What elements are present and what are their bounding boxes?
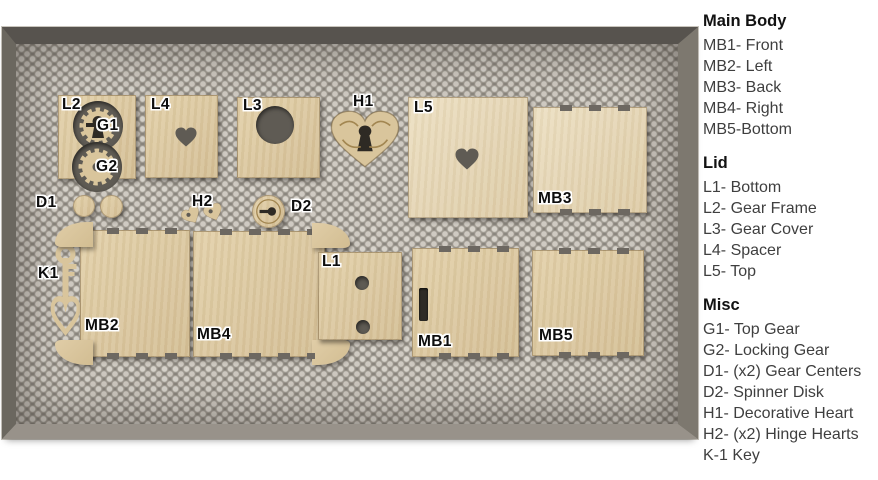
legend-item: L1- Bottom	[703, 177, 876, 198]
parts-legend: Main BodyMB1- FrontMB2- LeftMB3- BackMB4…	[703, 12, 876, 480]
legend-item: MB1- Front	[703, 35, 876, 56]
decorative-horn	[55, 340, 93, 365]
legend-section-main-body: Main BodyMB1- FrontMB2- LeftMB3- BackMB4…	[703, 12, 876, 140]
legend-item: H2- (x2) Hinge Hearts	[703, 424, 876, 445]
piece-l4	[145, 95, 218, 178]
decorative-horn	[312, 340, 350, 365]
piece-l1	[318, 252, 402, 340]
legend-section-lid: LidL1- BottomL2- Gear FrameL3- Gear Cove…	[703, 154, 876, 282]
heart-cutout	[175, 127, 197, 147]
legend-item: L2- Gear Frame	[703, 198, 876, 219]
piece-d1b	[100, 195, 123, 218]
piece-mb1	[412, 248, 519, 357]
piece-mb2	[80, 230, 190, 357]
honeycomb-bed: L2G1G2L4L3H1L5MB3D1H2D2K1MB2MB4L1MB1MB5	[16, 44, 678, 424]
legend-item-list: G1- Top GearG2- Locking GearD1- (x2) Gea…	[703, 319, 876, 466]
piece-h2b	[202, 201, 226, 223]
legend-item: L5- Top	[703, 261, 876, 282]
legend-section-title: Main Body	[703, 12, 876, 31]
piece-l3	[237, 97, 320, 178]
circle-cutout	[256, 106, 294, 144]
circle-cutout	[355, 276, 369, 290]
piece-mb5	[532, 250, 644, 356]
legend-item: MB3- Back	[703, 77, 876, 98]
piece-label-d1: D1	[36, 194, 57, 212]
piece-d1a	[73, 195, 95, 217]
gear-cutout	[72, 142, 122, 192]
legend-section-title: Lid	[703, 154, 876, 173]
legend-item: MB4- Right	[703, 98, 876, 119]
legend-item: L3- Gear Cover	[703, 219, 876, 240]
piece-d2	[252, 195, 285, 228]
piece-l2	[58, 95, 136, 179]
laser-bed-photo: L2G1G2L4L3H1L5MB3D1H2D2K1MB2MB4L1MB1MB5	[2, 27, 698, 439]
piece-mb3	[533, 107, 647, 213]
piece-h1	[330, 110, 400, 168]
legend-item: MB2- Left	[703, 56, 876, 77]
legend-section-title: Misc	[703, 296, 876, 315]
piece-label-h1: H1	[353, 93, 374, 111]
legend-item: L4- Spacer	[703, 240, 876, 261]
legend-item-list: MB1- FrontMB2- LeftMB3- BackMB4- RightMB…	[703, 35, 876, 140]
piece-k1	[52, 245, 79, 333]
legend-item: G2- Locking Gear	[703, 340, 876, 361]
piece-l5	[408, 97, 528, 218]
legend-item: H1- Decorative Heart	[703, 403, 876, 424]
legend-item: D1- (x2) Gear Centers	[703, 361, 876, 382]
piece-label-d2: D2	[291, 198, 312, 216]
piece-mb4	[193, 231, 325, 357]
decorative-horn	[312, 223, 350, 248]
legend-item: D2- Spinner Disk	[703, 382, 876, 403]
legend-item: MB5-Bottom	[703, 119, 876, 140]
decorative-horn	[55, 222, 93, 247]
legend-section-misc: MiscG1- Top GearG2- Locking GearD1- (x2)…	[703, 296, 876, 466]
legend-item-list: L1- BottomL2- Gear FrameL3- Gear CoverL4…	[703, 177, 876, 282]
circle-cutout	[356, 320, 370, 334]
slot-cutout	[419, 288, 428, 321]
legend-item: G1- Top Gear	[703, 319, 876, 340]
piece-h2a	[179, 203, 204, 227]
legend-item: K-1 Key	[703, 445, 876, 466]
heart-cutout	[455, 148, 479, 170]
